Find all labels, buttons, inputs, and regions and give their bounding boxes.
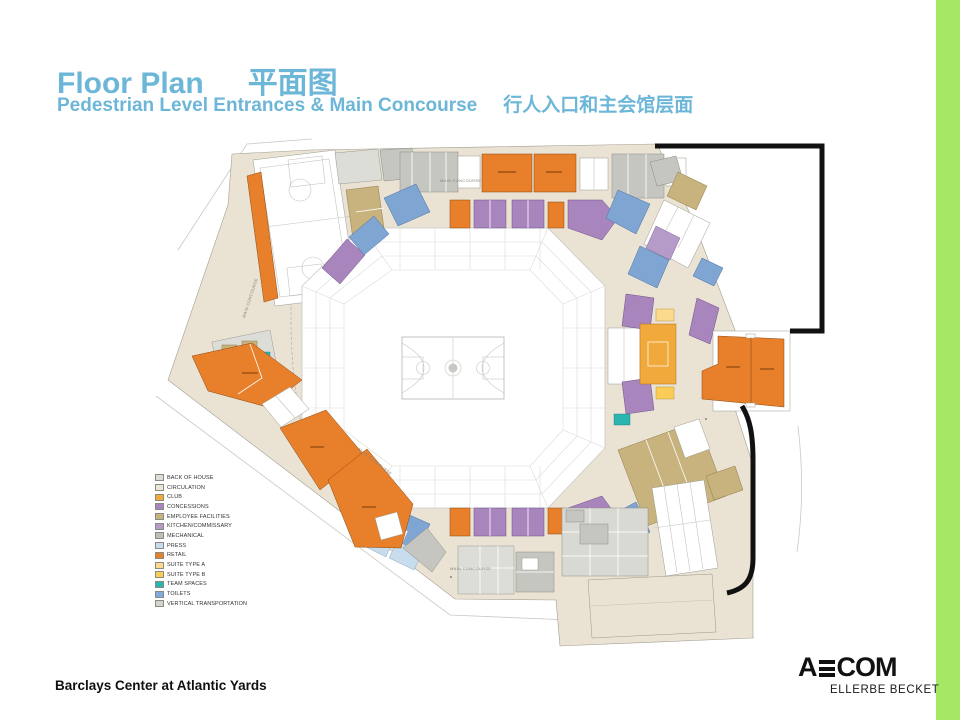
legend-item: TEAM SPACES	[155, 580, 247, 590]
club-room	[640, 324, 676, 384]
ellerbe-becket-logo: ELLERBE BECKET	[830, 684, 928, 696]
legend-item: TOILETS	[155, 589, 247, 599]
legend-label: PRESS	[167, 543, 186, 549]
legend-label: SUITE TYPE A	[167, 562, 205, 568]
legend-item: MECHANICAL	[155, 531, 247, 541]
legend-label: KITCHEN/COMMISSARY	[167, 523, 232, 529]
legend-swatch	[155, 523, 164, 530]
svg-text:MAIN CONCOURSE: MAIN CONCOURSE	[450, 566, 491, 571]
east-retail-bumpout	[702, 331, 790, 411]
green-accent-bar	[936, 0, 960, 720]
suite-type-b-room	[656, 387, 674, 399]
legend-swatch	[155, 600, 164, 607]
legend-swatch	[155, 484, 164, 491]
aecom-letter-a: A	[798, 652, 817, 683]
legend-swatch	[155, 513, 164, 520]
slide: Floor Plan平面图 Pedestrian Level Entrances…	[0, 0, 960, 720]
legend-label: VERTICAL TRANSPORTATION	[167, 601, 247, 607]
legend-label: MECHANICAL	[167, 533, 204, 539]
legend-item: CLUB	[155, 492, 247, 502]
legend-label: EMPLOYEE FACILITIES	[167, 514, 230, 520]
footer-text: Barclays Center at Atlantic Yards	[55, 678, 267, 693]
legend-label: RETAIL	[167, 552, 186, 558]
legend-item: RETAIL	[155, 551, 247, 561]
subtitle-chinese: 行人入口和主会馆层面	[503, 95, 693, 116]
legend-swatch	[155, 542, 164, 549]
legend-label: TOILETS	[167, 591, 191, 597]
legend-swatch	[155, 474, 164, 481]
center-court-logo	[449, 364, 458, 373]
legend-swatch	[155, 591, 164, 598]
svg-text:MAIN CONCOURSE: MAIN CONCOURSE	[440, 178, 481, 183]
legend-swatch	[155, 494, 164, 501]
aecom-letters-com: COM	[837, 652, 897, 683]
legend-item: CIRCULATION	[155, 483, 247, 493]
legend-item: SUITE TYPE B	[155, 570, 247, 580]
legend-item: CONCESSIONS	[155, 502, 247, 512]
legend-swatch	[155, 552, 164, 559]
aecom-logo: A COM	[798, 652, 928, 683]
legend-swatch	[155, 503, 164, 510]
legend-label: SUITE TYPE B	[167, 572, 205, 578]
subtitle-english: Pedestrian Level Entrances & Main Concou…	[57, 95, 477, 116]
legend-label: CIRCULATION	[167, 485, 205, 491]
floor-plan: MAIN CONCOURSE MAIN CONCOURSE MAIN CONCO…	[150, 128, 850, 650]
legend-list: BACK OF HOUSECIRCULATIONCLUBCONCESSIONSE…	[155, 473, 247, 609]
north-edge-rooms	[400, 152, 686, 198]
legend-item: BACK OF HOUSE	[155, 473, 247, 483]
legend-label: BACK OF HOUSE	[167, 475, 214, 481]
suite-type-a-room	[656, 309, 674, 321]
logo-block: A COM ELLERBE BECKET	[798, 652, 928, 696]
legend-swatch	[155, 532, 164, 539]
legend-swatch	[155, 581, 164, 588]
legend-item: PRESS	[155, 541, 247, 551]
aecom-e-bars-icon	[819, 660, 835, 677]
legend-label: CONCESSIONS	[167, 504, 209, 510]
legend-item: KITCHEN/COMMISSARY	[155, 521, 247, 531]
legend-swatch	[155, 571, 164, 578]
legend-label: CLUB	[167, 494, 182, 500]
legend-item: SUITE TYPE A	[155, 560, 247, 570]
legend-swatch	[155, 562, 164, 569]
basketball-court	[402, 337, 504, 399]
team-spaces-room	[614, 414, 630, 425]
legend-label: TEAM SPACES	[167, 581, 207, 587]
legend-item: EMPLOYEE FACILITIES	[155, 512, 247, 522]
page-subtitle: Pedestrian Level Entrances & Main Concou…	[57, 90, 693, 117]
legend-item: VERTICAL TRANSPORTATION	[155, 599, 247, 609]
